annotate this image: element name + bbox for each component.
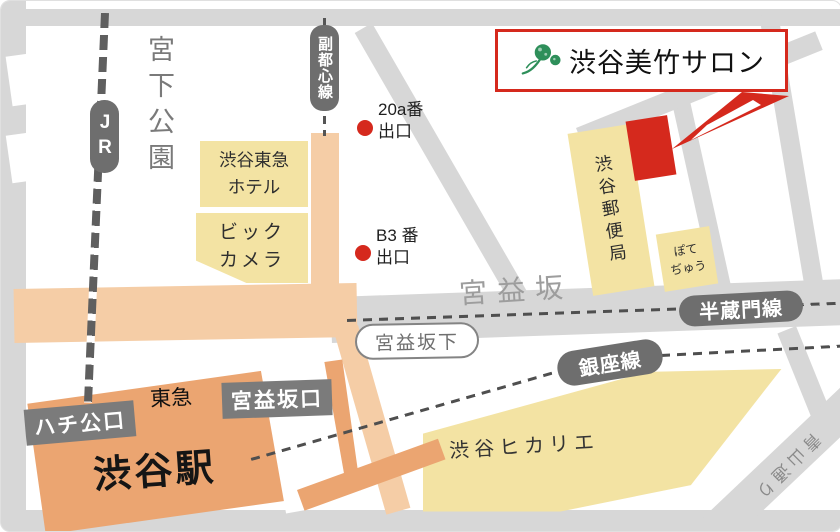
salon-building-marker xyxy=(626,115,677,181)
ginza-line-dashed-right xyxy=(661,344,840,356)
post-office-label: 渋谷郵便局 xyxy=(590,152,632,267)
building-potejyu: ぽて ぢゅう xyxy=(656,226,718,292)
shibuya-station-label: 渋谷駅 xyxy=(91,436,218,499)
miyamasuzaka-shita-intersection-label: 宮益坂下 xyxy=(355,322,480,360)
tokyu-hotel-label-line2: ホテル xyxy=(228,174,281,201)
tokyu-hotel-label-line1: 渋谷東急 xyxy=(219,147,289,174)
exit-20a-line1: 20a番 xyxy=(378,99,423,121)
exit-20a-line2: 出口 xyxy=(378,121,423,143)
miyamasuzaka-exit-badge: 宮益坂口 xyxy=(221,379,332,419)
jr-line-label: JR xyxy=(94,112,116,162)
miyamasuzaka-street-label: 宮益坂 xyxy=(458,266,574,313)
walkway-vertical-band xyxy=(311,133,339,293)
tokyu-label: 東急 xyxy=(149,381,193,413)
exit-b3-line1: B3 番 xyxy=(376,225,419,247)
exit-20a-label: 20a番 出口 xyxy=(378,99,423,143)
jr-railway-line xyxy=(84,13,109,403)
ginza-line-label: 銀座線 xyxy=(577,343,644,381)
jr-line-badge: JR xyxy=(90,100,119,173)
access-map: 渋谷東急 ホテル ビック カメラ 渋谷郵便局 ぽて ぢゅう 渋谷ヒカリエ JR … xyxy=(0,0,840,532)
exit-b3-label: B3 番 出口 xyxy=(376,225,419,269)
building-tokyu-hotel: 渋谷東急 ホテル xyxy=(200,141,308,207)
exit-b3-line2: 出口 xyxy=(376,247,419,269)
road-top-edge xyxy=(1,9,840,26)
walkway-horizontal-band xyxy=(14,283,358,343)
miyamasuzaka-shita-text: 宮益坂下 xyxy=(375,327,459,355)
salon-name: 渋谷美竹サロン xyxy=(569,41,765,80)
hanzomon-line-badge: 半蔵門線 xyxy=(678,290,803,327)
miyashita-park-label: 宮下公園 xyxy=(140,35,179,179)
fukutoshin-line-badge: 副都心線 xyxy=(310,25,339,111)
bic-camera-label-line1: ビック xyxy=(219,219,285,248)
flower-sprig-icon xyxy=(518,41,562,81)
exit-b3-dot xyxy=(355,245,371,261)
hanzomon-line-label: 半蔵門線 xyxy=(698,292,783,325)
building-bic-camera: ビック カメラ xyxy=(196,213,308,283)
hikarie-label: 渋谷ヒカリエ xyxy=(448,425,599,463)
bic-camera-label-line2: カメラ xyxy=(219,247,285,276)
exit-20a-dot xyxy=(357,120,373,136)
salon-callout-box: 渋谷美竹サロン xyxy=(495,29,788,92)
fukutoshin-line-label: 副都心線 xyxy=(314,36,335,100)
